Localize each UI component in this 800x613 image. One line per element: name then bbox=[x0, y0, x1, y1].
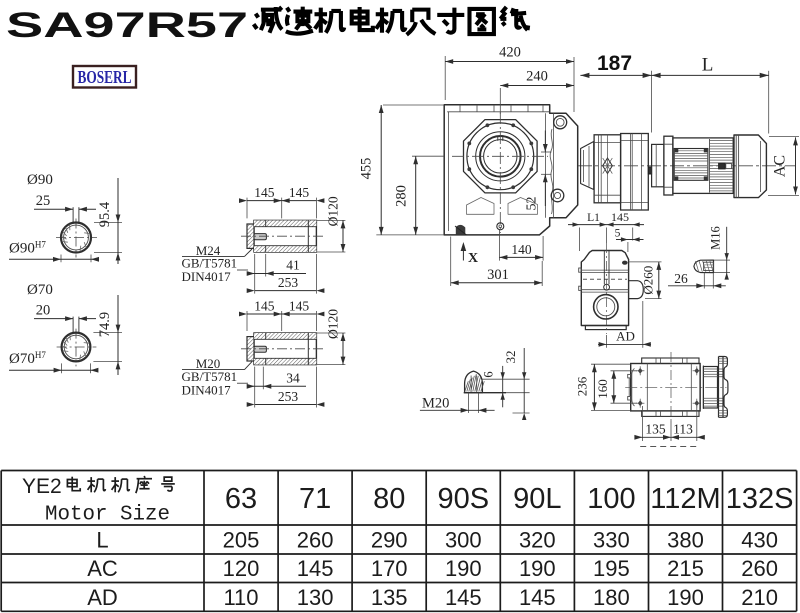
svg-text:380: 380 bbox=[667, 528, 704, 553]
svg-text:L: L bbox=[96, 528, 108, 553]
svg-text:YE2: YE2 bbox=[22, 475, 62, 498]
svg-text:AD: AD bbox=[87, 585, 118, 610]
svg-text:25: 25 bbox=[36, 193, 51, 209]
svg-text:145: 145 bbox=[254, 185, 275, 200]
svg-text:26: 26 bbox=[674, 271, 688, 286]
svg-text:BOSERL: BOSERL bbox=[78, 67, 132, 87]
svg-text:187: 187 bbox=[597, 52, 632, 75]
svg-text:90S: 90S bbox=[437, 483, 489, 515]
svg-text:236: 236 bbox=[575, 376, 590, 396]
svg-text:DIN4017: DIN4017 bbox=[182, 382, 232, 397]
svg-text:110: 110 bbox=[223, 585, 258, 610]
svg-text:95.4: 95.4 bbox=[97, 201, 113, 227]
svg-text:52: 52 bbox=[525, 197, 540, 211]
svg-text:145: 145 bbox=[519, 585, 556, 610]
svg-text:L1: L1 bbox=[587, 212, 600, 224]
svg-text:160: 160 bbox=[595, 379, 610, 399]
svg-text:145: 145 bbox=[289, 185, 310, 200]
svg-text:430: 430 bbox=[741, 528, 778, 553]
svg-text:132S: 132S bbox=[726, 483, 794, 515]
svg-text:80: 80 bbox=[373, 483, 405, 515]
svg-text:L: L bbox=[702, 55, 714, 76]
svg-text:DIN4017: DIN4017 bbox=[182, 269, 232, 284]
svg-text:X: X bbox=[468, 251, 478, 266]
svg-text:290: 290 bbox=[371, 528, 408, 553]
svg-text:Ø260: Ø260 bbox=[640, 266, 655, 295]
svg-text:32: 32 bbox=[503, 351, 518, 364]
svg-text:90L: 90L bbox=[513, 483, 561, 515]
svg-text:320: 320 bbox=[519, 528, 556, 553]
svg-text:71: 71 bbox=[299, 483, 331, 515]
svg-text:Ø70: Ø70 bbox=[27, 282, 53, 298]
svg-text:455: 455 bbox=[359, 158, 375, 180]
svg-text:195: 195 bbox=[593, 556, 630, 581]
svg-text:120: 120 bbox=[223, 556, 260, 581]
svg-text:280: 280 bbox=[394, 185, 410, 207]
svg-text:145: 145 bbox=[445, 585, 482, 610]
svg-text:Ø120: Ø120 bbox=[325, 309, 340, 339]
svg-text:112M: 112M bbox=[650, 483, 720, 515]
svg-text:130: 130 bbox=[297, 585, 334, 610]
svg-text:140: 140 bbox=[511, 242, 532, 257]
svg-text:63: 63 bbox=[225, 483, 257, 515]
svg-text:AD: AD bbox=[616, 329, 635, 344]
svg-text:180: 180 bbox=[593, 585, 630, 610]
svg-text:AC: AC bbox=[87, 556, 118, 581]
svg-text:135: 135 bbox=[645, 422, 666, 437]
svg-text:34: 34 bbox=[286, 371, 300, 386]
svg-text:5: 5 bbox=[615, 228, 621, 240]
svg-text:205: 205 bbox=[223, 528, 260, 553]
svg-text:260: 260 bbox=[741, 556, 778, 581]
svg-text:AC: AC bbox=[772, 155, 789, 177]
svg-text:135: 135 bbox=[371, 585, 408, 610]
svg-text:330: 330 bbox=[593, 528, 630, 553]
svg-text:240: 240 bbox=[526, 69, 548, 85]
svg-text:100: 100 bbox=[587, 483, 635, 515]
svg-text:300: 300 bbox=[445, 528, 482, 553]
svg-text:Motor Size: Motor Size bbox=[45, 504, 170, 527]
svg-text:20: 20 bbox=[36, 303, 51, 319]
svg-text:253: 253 bbox=[278, 389, 299, 404]
svg-text:6: 6 bbox=[482, 371, 496, 377]
svg-text:74.9: 74.9 bbox=[97, 312, 113, 337]
svg-text:145: 145 bbox=[289, 299, 310, 314]
svg-text:Ø90: Ø90 bbox=[27, 172, 53, 188]
svg-text:420: 420 bbox=[499, 45, 521, 61]
svg-text:190: 190 bbox=[667, 585, 704, 610]
svg-text:Ø120: Ø120 bbox=[325, 196, 340, 226]
svg-text:215: 215 bbox=[667, 556, 704, 581]
svg-text:301: 301 bbox=[487, 267, 509, 283]
svg-text:170: 170 bbox=[371, 556, 408, 581]
svg-text:41: 41 bbox=[286, 258, 300, 273]
svg-text:M16: M16 bbox=[709, 226, 723, 250]
svg-text:190: 190 bbox=[519, 556, 556, 581]
svg-text:260: 260 bbox=[297, 528, 334, 553]
svg-text:SA97R57: SA97R57 bbox=[6, 6, 248, 45]
svg-text:M20: M20 bbox=[422, 396, 449, 412]
svg-text:145: 145 bbox=[254, 299, 275, 314]
svg-text:253: 253 bbox=[278, 275, 299, 290]
svg-text:145: 145 bbox=[297, 556, 334, 581]
svg-text:113: 113 bbox=[673, 422, 693, 437]
svg-text:210: 210 bbox=[741, 585, 778, 610]
svg-text:190: 190 bbox=[445, 556, 482, 581]
svg-text:145: 145 bbox=[611, 210, 629, 224]
